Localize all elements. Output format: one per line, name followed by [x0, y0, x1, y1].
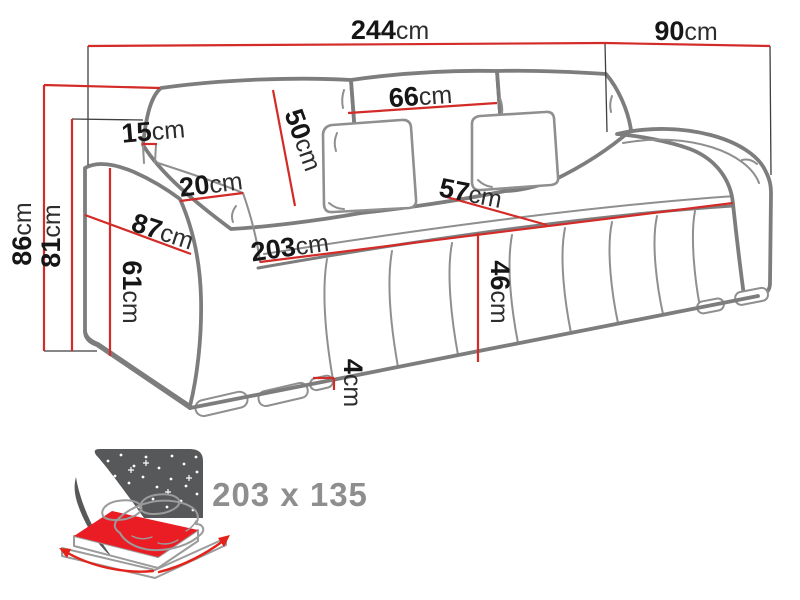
backrest-post-line: [155, 144, 156, 163]
sofa-dimension-diagram: 244cm 90cm 86cm 81cm 61cm 46cm 4cm 15cm …: [0, 0, 800, 600]
sleeping-area-size-label: 203 x 135: [212, 476, 368, 513]
dim-label-seat-height: 46cm: [485, 260, 515, 323]
dim-label-armrest-height: 61cm: [117, 260, 147, 323]
dim-label-total-depth: 90cm: [654, 16, 717, 46]
dim-line-244: [88, 43, 605, 46]
dim-label-cushion-width: 66cm: [388, 79, 453, 113]
dim-label-total-width: 244cm: [351, 15, 429, 45]
seat: [190, 196, 758, 408]
sleeping-area: 203 x 135: [59, 449, 368, 578]
extension-line: [770, 46, 771, 175]
dim-label-leg-height: 4cm: [338, 359, 368, 407]
backrest-post-line: [143, 146, 144, 163]
diagram-canvas: 244cm 90cm 86cm 81cm 61cm 46cm 4cm 15cm …: [0, 0, 800, 600]
dim-label-back-post: 15cm: [120, 113, 186, 148]
dim-label-total-height: 86cm: [7, 202, 37, 265]
dim-label-back-height: 81cm: [36, 204, 66, 267]
night-sky-panel: [95, 449, 203, 518]
small-pillow-right: [472, 112, 558, 190]
bed-night-icon: [59, 449, 230, 578]
